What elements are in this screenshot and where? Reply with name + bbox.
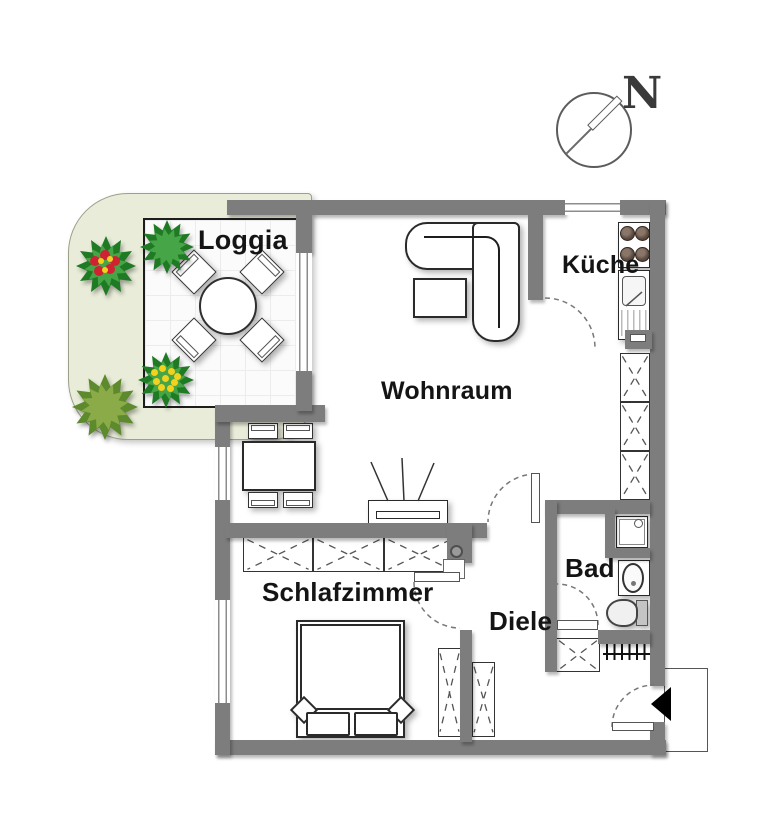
toilet [606, 598, 650, 628]
room-label-loggia: Loggia [198, 225, 288, 256]
bush-with-red-flowers [76, 236, 136, 296]
wall-bath-bottom [598, 630, 650, 644]
tv-line [418, 463, 434, 501]
wall-bottom [215, 740, 666, 755]
living-hall-door-arc [488, 474, 536, 522]
hall-wardrobe [620, 451, 650, 500]
shower-drain-icon [634, 519, 643, 528]
dining-chair [283, 423, 313, 439]
compass-circle-icon [556, 92, 632, 168]
burner-icon [635, 226, 650, 241]
dining-table [242, 441, 316, 491]
bedroom-wardrobe [243, 537, 313, 572]
room-label-kueche: Küche [562, 251, 639, 280]
dining-chair [283, 492, 313, 508]
wall-shower-divider-v [605, 508, 615, 552]
wardrobe-x-icon [621, 403, 649, 450]
wardrobe-x-icon [439, 649, 460, 736]
double-bed [296, 620, 405, 740]
bedroom-tall-wardrobe [438, 648, 461, 737]
bathroom-door-arc [557, 584, 598, 625]
loggia-door-stub-bottom [296, 371, 312, 411]
bathroom-door-leaf [557, 620, 598, 630]
entrance-door-arc [612, 685, 654, 727]
shower [616, 516, 648, 548]
diele-cabinet [556, 638, 600, 672]
pillow [306, 712, 350, 736]
toilet-bowl [606, 599, 638, 627]
wardrobe-x-icon [244, 538, 312, 571]
washbasin [618, 560, 650, 596]
tv-sideboard [368, 500, 448, 524]
bush-green-top [140, 220, 194, 274]
tv-line [402, 458, 404, 501]
wardrobe-x-icon [473, 663, 494, 736]
room-label-schlafzimmer: Schlafzimmer [262, 577, 433, 608]
dining-chair [248, 492, 278, 508]
diele-tall-wardrobe [472, 662, 495, 737]
burner-icon [620, 226, 635, 241]
dining-set [242, 423, 316, 509]
radiator-icon [606, 644, 650, 660]
bedroom-wardrobe [313, 537, 384, 572]
wall-bath-left [545, 500, 557, 672]
wall-kitchen-partition [528, 215, 543, 300]
floor-plan: N [0, 0, 769, 830]
kitchen-door-arc [545, 298, 595, 348]
entrance-door-leaf [612, 722, 654, 731]
wall-right [650, 200, 665, 686]
room-label-wohnraum: Wohnraum [381, 377, 513, 406]
tv-line [371, 462, 388, 501]
living-hall-door-leaf [531, 473, 540, 523]
wall-bath-top [545, 500, 650, 514]
wardrobe-x-icon [557, 639, 599, 671]
room-label-diele: Diele [489, 606, 552, 637]
loggia-glass-door [296, 253, 312, 371]
room-label-bad: Bad [565, 553, 615, 584]
wardrobe-x-icon [621, 452, 649, 499]
dining-chair [248, 423, 278, 439]
duvet [300, 624, 401, 710]
bush-with-yellow-flowers [138, 352, 194, 408]
column-knob-icon [450, 545, 463, 558]
round-table [199, 277, 257, 335]
wall-top-left [227, 200, 565, 215]
compass-north-label: N [622, 68, 662, 119]
coffee-table [413, 278, 467, 318]
kitchen-window [565, 200, 620, 215]
hall-wardrobe [620, 353, 650, 402]
entrance-arrow-icon [651, 687, 671, 721]
wall-bedroom-diele [460, 630, 472, 742]
wardrobe-x-icon [314, 538, 383, 571]
dining-window [215, 447, 230, 500]
tv-screen [376, 511, 440, 519]
niche-slot [630, 334, 646, 342]
loggia-door-stub-top [296, 215, 312, 253]
basin-drain-icon [631, 581, 636, 586]
bedroom-window [215, 600, 230, 703]
pillow [354, 712, 398, 736]
sink-basin [622, 276, 646, 306]
hall-wardrobe [620, 402, 650, 451]
wardrobe-x-icon [621, 354, 649, 401]
bush-olive-bottom [72, 374, 138, 440]
